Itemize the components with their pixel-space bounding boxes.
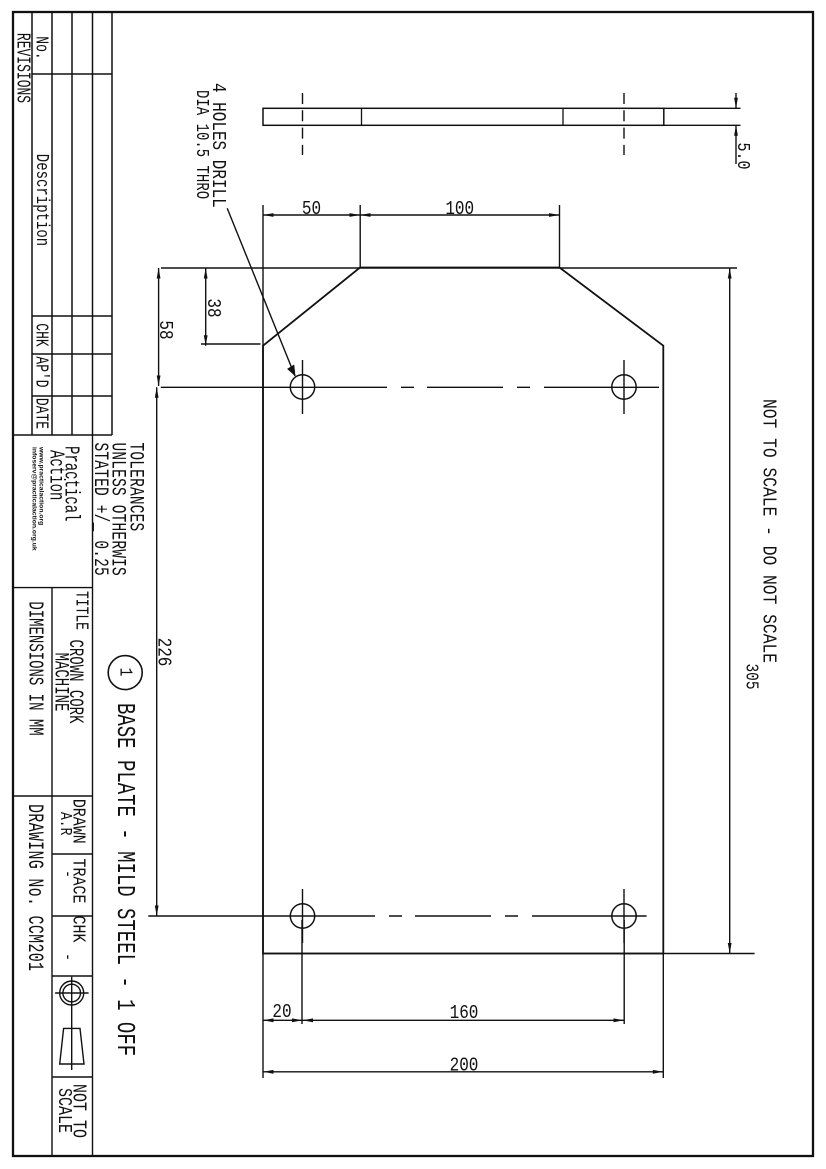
svg-text:MACHINE: MACHINE <box>49 653 72 712</box>
svg-text:58: 58 <box>153 320 175 339</box>
svg-text:5.0: 5.0 <box>731 143 752 170</box>
svg-text:SCALE: SCALE <box>52 1088 73 1133</box>
svg-text:20: 20 <box>272 1002 291 1024</box>
svg-text:www.practicalaction.org: www.practicalaction.org <box>38 446 45 525</box>
svg-text:160: 160 <box>450 1003 479 1025</box>
svg-text:REVISIONS: REVISIONS <box>12 33 34 103</box>
svg-text:DIA 10.5 THRO: DIA 10.5 THRO <box>192 90 213 199</box>
svg-text:TITLE: TITLE <box>71 591 92 630</box>
svg-text:Description: Description <box>31 154 53 246</box>
svg-text:Action: Action <box>43 450 67 500</box>
svg-text:AP'D: AP'D <box>31 356 52 387</box>
svg-text:NOT TO SCALE - DO NOT SCALE: NOT TO SCALE - DO NOT SCALE <box>757 399 779 663</box>
svg-text:100: 100 <box>445 199 474 221</box>
svg-text:A.R: A.R <box>55 812 75 835</box>
svg-text:50: 50 <box>302 199 321 221</box>
svg-text:305: 305 <box>740 663 761 689</box>
svg-text:TRACE: TRACE <box>67 859 88 904</box>
svg-text:226: 226 <box>152 638 174 667</box>
svg-text:DATE: DATE <box>31 398 52 429</box>
svg-text:CHK: CHK <box>31 323 52 347</box>
svg-text:STATED +/_ 0.25: STATED +/_ 0.25 <box>88 443 111 576</box>
svg-text:-: - <box>57 870 77 878</box>
svg-text:BASE PLATE - MILD STEEL - 1 OF: BASE PLATE - MILD STEEL - 1 OFF <box>110 703 140 1056</box>
svg-text:-: - <box>57 953 77 961</box>
svg-text:DRAWING No. CCM201: DRAWING No. CCM201 <box>22 804 48 971</box>
svg-text:CHK: CHK <box>67 915 88 943</box>
svg-text:200: 200 <box>450 1055 479 1077</box>
svg-text:DIMENSIONS IN MM: DIMENSIONS IN MM <box>22 601 46 735</box>
svg-text:38: 38 <box>201 298 223 317</box>
svg-text:infoserv@practicalaction.org.u: infoserv@practicalaction.org.uk <box>31 447 38 551</box>
svg-text:1: 1 <box>114 667 135 676</box>
